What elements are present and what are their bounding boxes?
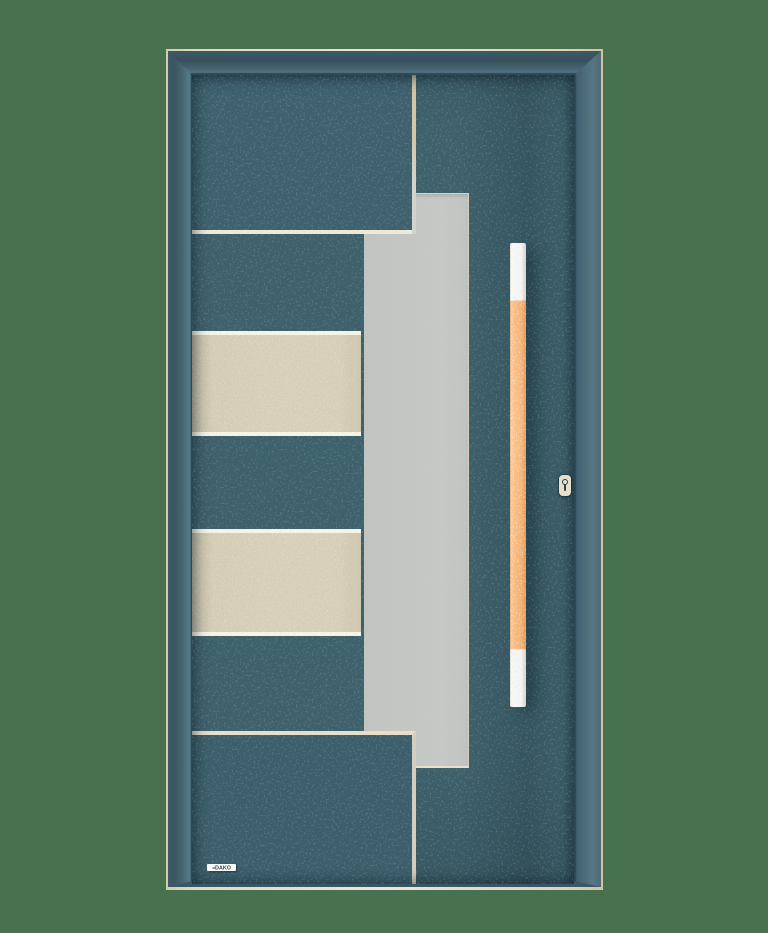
- svg-text:»DAKO: »DAKO: [212, 865, 231, 870]
